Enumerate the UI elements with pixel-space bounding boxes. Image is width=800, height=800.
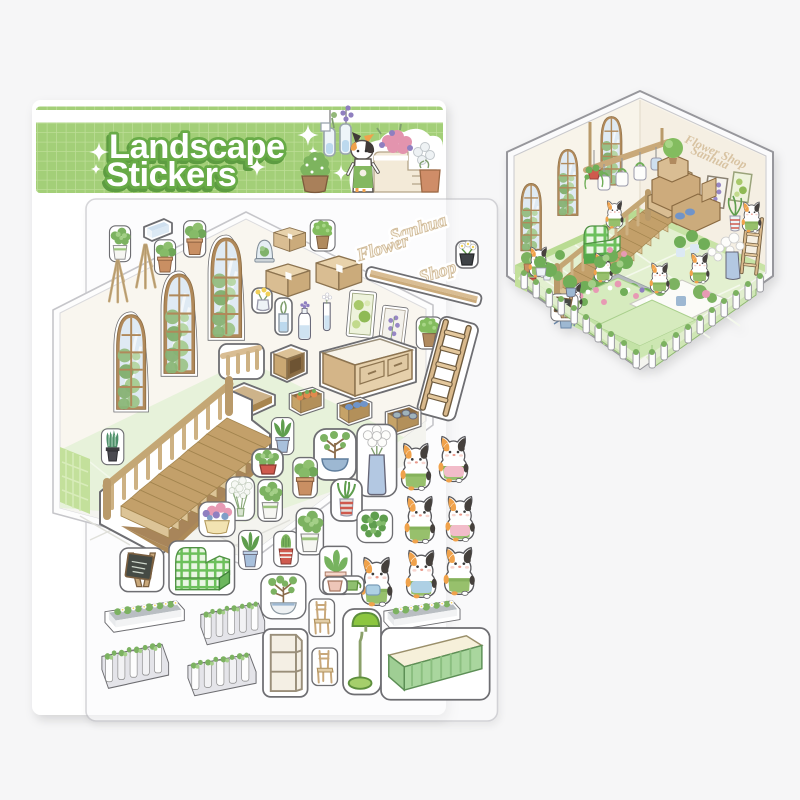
svg-text:Stickers: Stickers [106,156,236,194]
